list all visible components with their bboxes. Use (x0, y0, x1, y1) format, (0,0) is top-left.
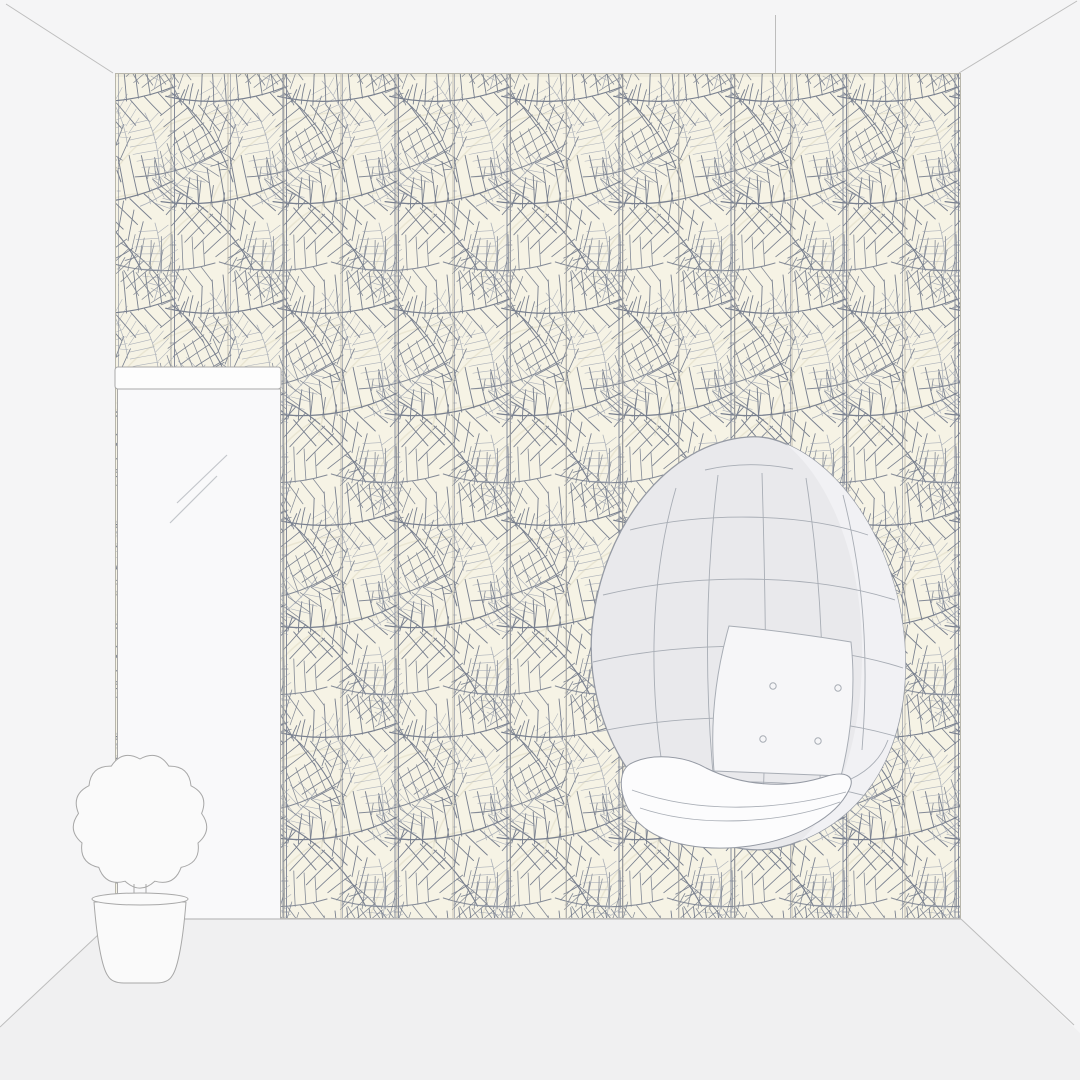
plant-pot-body (94, 902, 186, 983)
room-scene-svg (0, 0, 1080, 1080)
chair-back-cushion (713, 626, 853, 776)
product-mockup (0, 0, 1080, 1080)
mirror-top-rail (115, 367, 281, 389)
plant-pot-rim (92, 893, 188, 905)
